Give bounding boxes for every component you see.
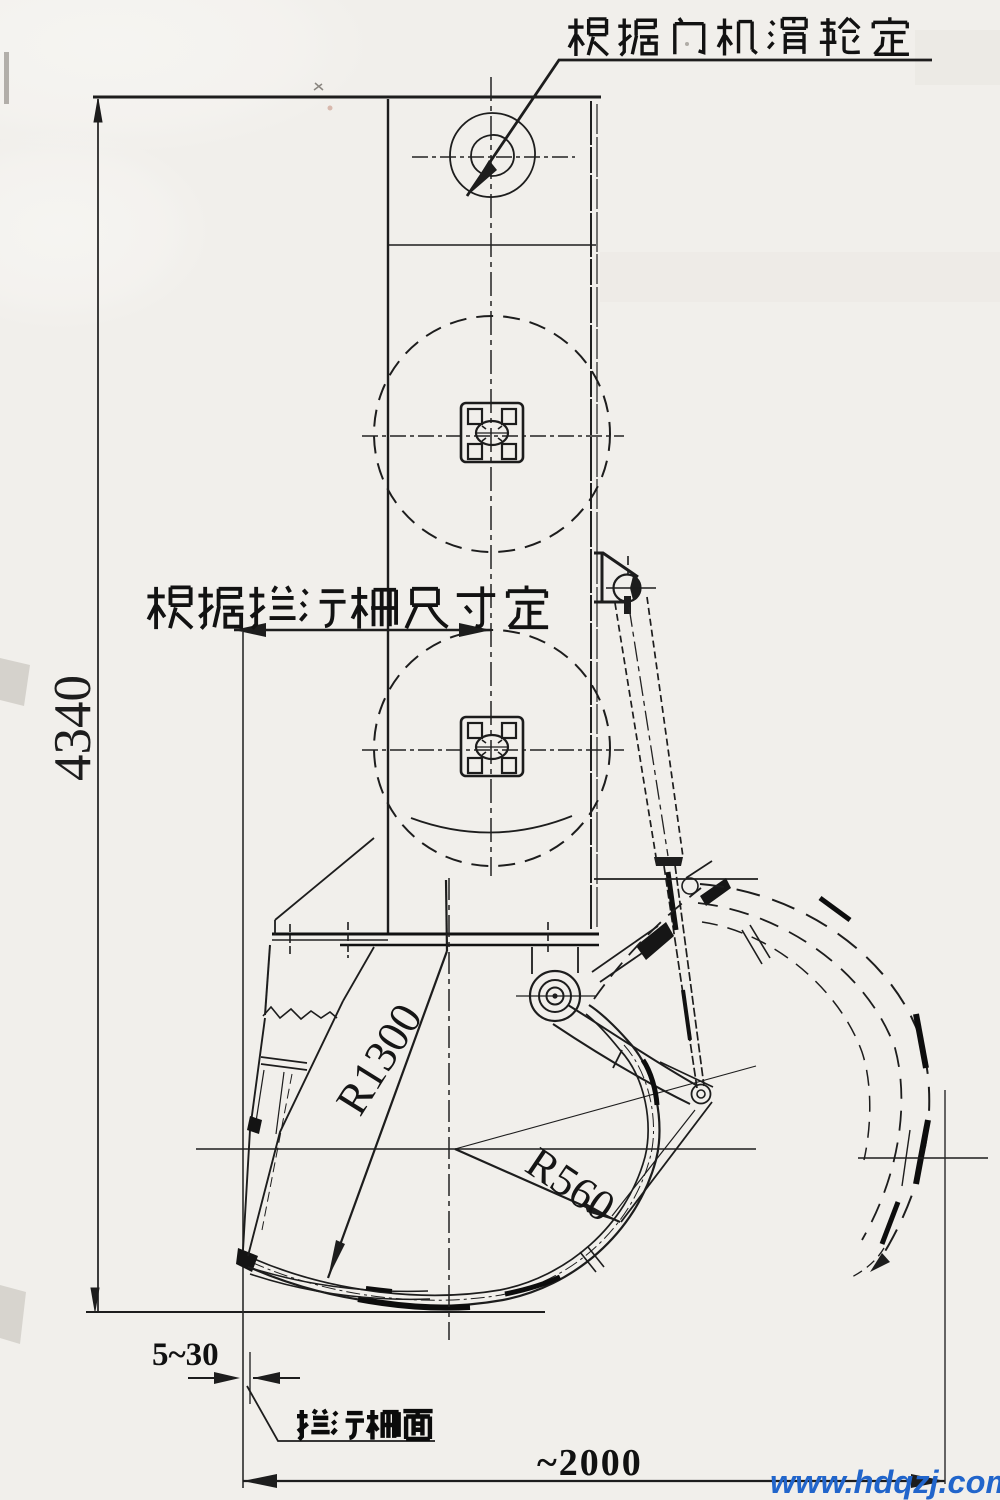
svg-text:~2000: ~2000 bbox=[537, 1442, 643, 1484]
svg-text:4340: 4340 bbox=[44, 675, 102, 781]
svg-text:5~30: 5~30 bbox=[152, 1337, 219, 1373]
svg-text:www.hdqzj.com: www.hdqzj.com bbox=[770, 1464, 1000, 1500]
